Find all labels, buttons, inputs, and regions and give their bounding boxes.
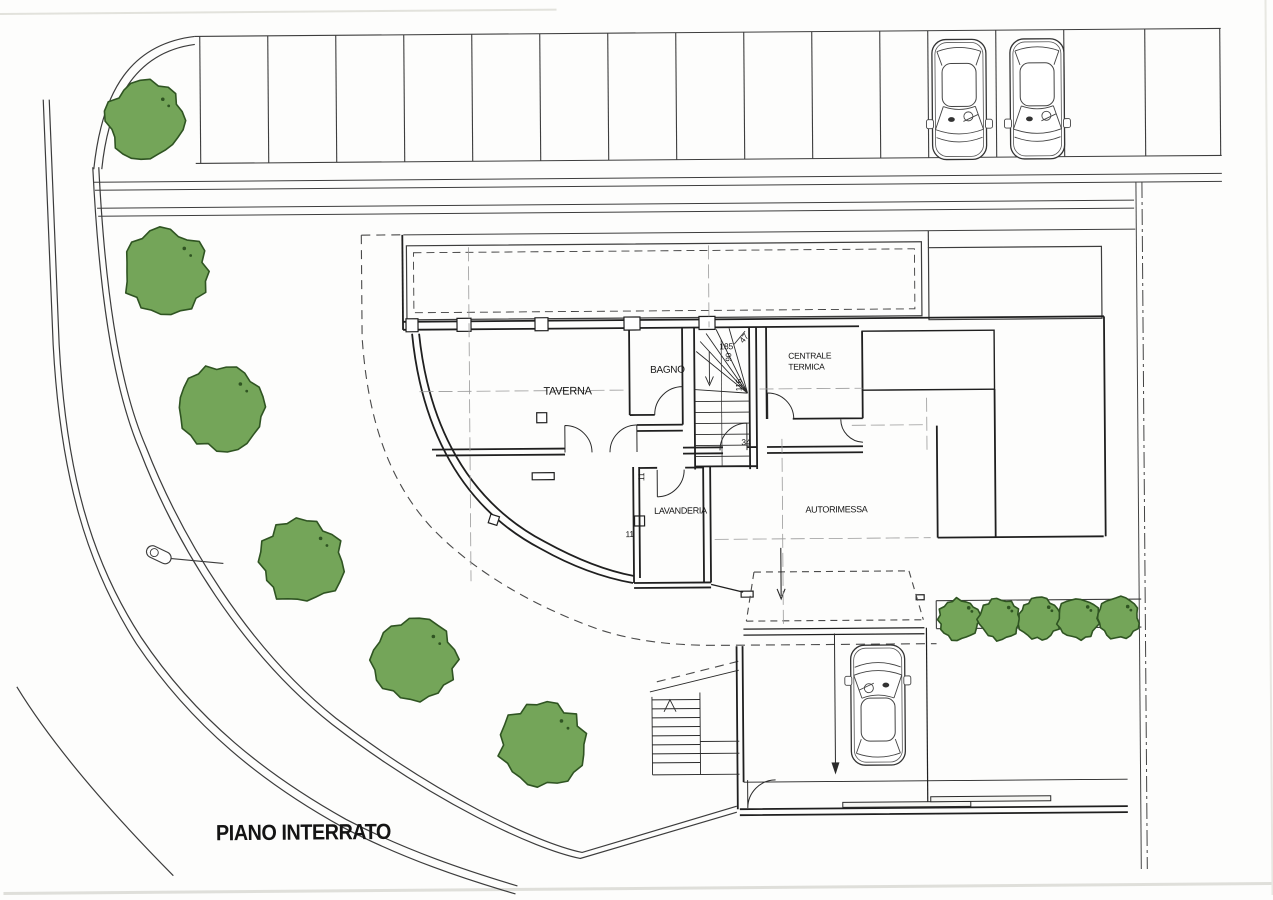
parking-area: [195, 28, 1222, 163]
parking-stall-divider: [744, 32, 745, 159]
parking-stall-divider: [1220, 28, 1221, 155]
dimension-label: 116: [734, 378, 743, 391]
room-label-centrale-termica-2: TERMICA: [788, 362, 825, 372]
parking-stall-divider: [608, 33, 609, 160]
exterior-staircase: [650, 670, 740, 775]
dimension-label: 90: [724, 352, 733, 361]
room-labels-group: TAVERNABAGNOCENTRALETERMICALAVANDERIAAUT…: [543, 350, 868, 517]
dimension-label: 11: [636, 472, 646, 481]
lightwell-strip: [406, 229, 1102, 323]
driveway-gate: [843, 796, 1051, 808]
tree-icon: [369, 618, 459, 702]
tree-icon: [179, 366, 266, 453]
street-lamp-icon: [144, 531, 223, 587]
parking-stall-divider: [540, 34, 541, 161]
parking-stall-divider: [200, 36, 201, 163]
bushes-group: [937, 596, 1139, 642]
scanned-floor-plan-page: PIANO INTERRATO: [0, 0, 1273, 900]
room-label-autorimessa: AUTORIMESSA: [805, 504, 867, 514]
parking-stall-divider: [472, 34, 473, 161]
tree-icon: [498, 701, 587, 787]
parked-car-2: [1004, 39, 1071, 160]
bush-icon: [1097, 596, 1139, 639]
parking-stall-dividers: [200, 28, 1221, 163]
bush-icon: [1018, 597, 1060, 640]
parking-stall-divider: [812, 32, 813, 159]
parking-stall-divider: [996, 30, 997, 157]
trees-group: [104, 76, 587, 791]
room-label-centrale-termica: CENTRALE: [788, 350, 832, 360]
room-label-bagno: BAGNO: [650, 365, 685, 376]
bush-icon: [1056, 599, 1099, 641]
room-label-lavanderia: LAVANDERIA: [654, 505, 707, 515]
plan-title: PIANO INTERRATO: [216, 820, 391, 846]
parking-stall-divider: [268, 36, 269, 163]
parked-car-1: [926, 39, 993, 160]
door-swings: [565, 385, 866, 809]
driveway-arrow: [830, 633, 839, 774]
plan-title-group: PIANO INTERRATO: [216, 820, 391, 846]
cars-group: [840, 39, 1076, 766]
sidewalk-lines: [94, 173, 1222, 237]
tree-icon: [258, 517, 345, 601]
dimension-label: 34: [741, 437, 751, 447]
bush-icon: [977, 598, 1020, 641]
tree-icon: [104, 79, 186, 160]
parking-stall-divider: [1145, 29, 1146, 156]
parking-stall-divider: [880, 31, 881, 158]
dimension-label: 185: [719, 341, 733, 351]
property-boundary-line: [1136, 182, 1147, 869]
parking-stall-divider: [676, 33, 677, 160]
floor-plan-canvas: PIANO INTERRATO: [0, 0, 1273, 900]
parking-stall-divider: [404, 35, 405, 162]
window-casings: [406, 316, 717, 526]
tree-icon: [125, 226, 209, 314]
driveway-car: [845, 645, 912, 766]
room-label-taverna: TAVERNA: [543, 385, 592, 397]
parking-stall-divider: [928, 31, 929, 158]
bush-icon: [937, 597, 982, 640]
dimension-label: 11: [625, 529, 634, 539]
parking-stall-divider: [336, 35, 337, 162]
garage-ramp: [746, 547, 924, 621]
